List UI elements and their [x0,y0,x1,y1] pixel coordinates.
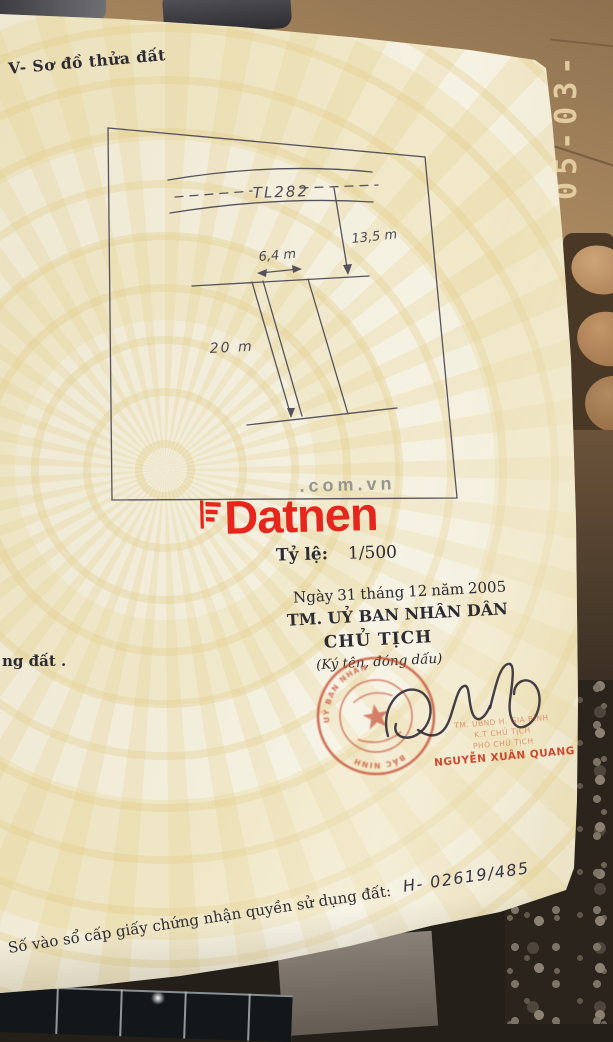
watermark-brand-text: Datnen [224,493,378,539]
road-edge-bottom [170,200,373,213]
dim-label-13-5: 13,5 m [351,227,398,247]
plot-front-line [192,276,369,286]
scale-line: Tỷ lệ: 1/500 [276,542,397,565]
section-title: V- Sơ đồ thửa đất [7,45,166,78]
plot-side-line-left-inner [263,281,302,416]
left-text-fragment: ng đất . [2,652,66,670]
watermark: .com.vn Datnen [197,473,397,539]
road-centerline [300,185,378,188]
arrowhead-left [257,269,267,277]
arrowhead-down [343,264,352,275]
arrowhead-down [287,408,295,418]
road-centerline [175,191,252,197]
dim-label-6-4: 6,4 m [258,247,297,265]
date-word-day: Ngày [293,587,334,607]
light-glint [150,992,166,1004]
dim-label-20: 20 m [209,339,254,357]
date-word-year: năm [431,580,465,600]
road-edge-top [168,168,372,180]
plot-diagram: TL282 13,5 m 6,4 m 20 m [80,110,500,530]
date-year-value: 2005 [468,578,507,598]
scale-label: Tỷ lệ: [276,544,329,565]
date-month-value: 12 [408,582,428,601]
plot-side-line-right [308,279,348,414]
date-day-value: 31 [337,585,357,604]
photo-of-land-certificate: { "photo": { "edge_timestamp": "05-03-",… [0,0,613,1024]
watermark-domain-suffix: .com.vn [299,473,396,497]
date-word-month: tháng [360,583,405,603]
arrowhead-right [292,265,302,273]
plot-back-line [247,408,397,425]
scale-value: 1/500 [348,542,398,563]
road-label: TL282 [253,182,310,202]
metal-grate [0,985,293,1042]
plot-side-line-left [252,282,291,416]
certificate-page: V- Sơ đồ thửa đất TL282 13,5 m 6,4 m 20 … [0,0,613,1024]
datnen-logo-icon [198,497,225,532]
